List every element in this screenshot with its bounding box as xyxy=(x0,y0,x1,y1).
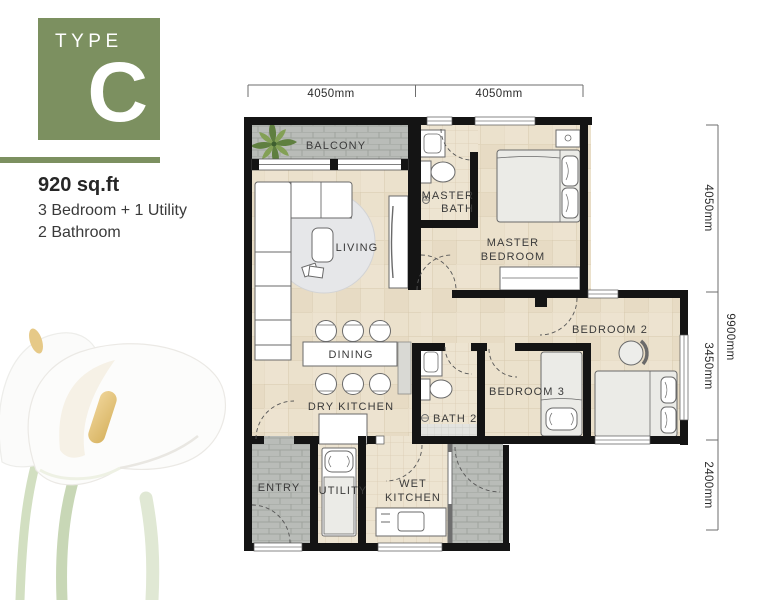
label-living: LIVING xyxy=(336,242,379,254)
dim-top-right: 4050mm xyxy=(475,88,522,100)
sliding-door xyxy=(252,159,408,170)
coffee-table xyxy=(312,228,333,262)
label-utility: UTILITY xyxy=(319,485,368,497)
dim-right-total: 9900mm xyxy=(724,313,736,360)
label-entry: ENTRY xyxy=(258,482,301,494)
label-wet-kitchen-2: KITCHEN xyxy=(385,492,441,504)
label-master-bedroom-2: BEDROOM xyxy=(481,251,546,263)
label-bedroom3: BEDROOM 3 xyxy=(489,386,565,398)
nightstand xyxy=(556,130,580,147)
calla-lily-image xyxy=(0,327,225,600)
label-master-bath-2: BATH xyxy=(441,203,474,215)
label-wet-kitchen-1: WET xyxy=(399,478,427,490)
label-dining: DINING xyxy=(328,349,373,361)
label-dry-kitchen: DRY KITCHEN xyxy=(308,401,394,413)
yard-floor xyxy=(452,436,503,543)
tv-console xyxy=(389,196,408,288)
wet-kitchen-counter xyxy=(376,508,446,536)
dim-right-1: 4050mm xyxy=(702,184,714,231)
floor-plan: BALCONY LIVING DINING DRY KITCHEN MASTER… xyxy=(0,0,773,600)
label-bedroom2: BEDROOM 2 xyxy=(572,324,648,336)
kitchen-counter-side xyxy=(398,342,411,394)
label-balcony: BALCONY xyxy=(306,140,366,152)
bedroom2-bed xyxy=(595,371,677,437)
master-wardrobe xyxy=(500,267,580,290)
dim-right-2: 3450mm xyxy=(702,342,714,389)
floorplan-page: TYPE C 920 sq.ft 3 Bedroom + 1 Utility 2… xyxy=(0,0,773,600)
dim-right-3: 2400mm xyxy=(702,461,714,508)
label-bath2: BATH 2 xyxy=(433,413,477,425)
label-master-bedroom-1: MASTER xyxy=(487,237,539,249)
label-master-bath-1: MASTER xyxy=(422,190,474,202)
dim-top-left: 4050mm xyxy=(307,88,354,100)
shower-area xyxy=(413,424,477,437)
